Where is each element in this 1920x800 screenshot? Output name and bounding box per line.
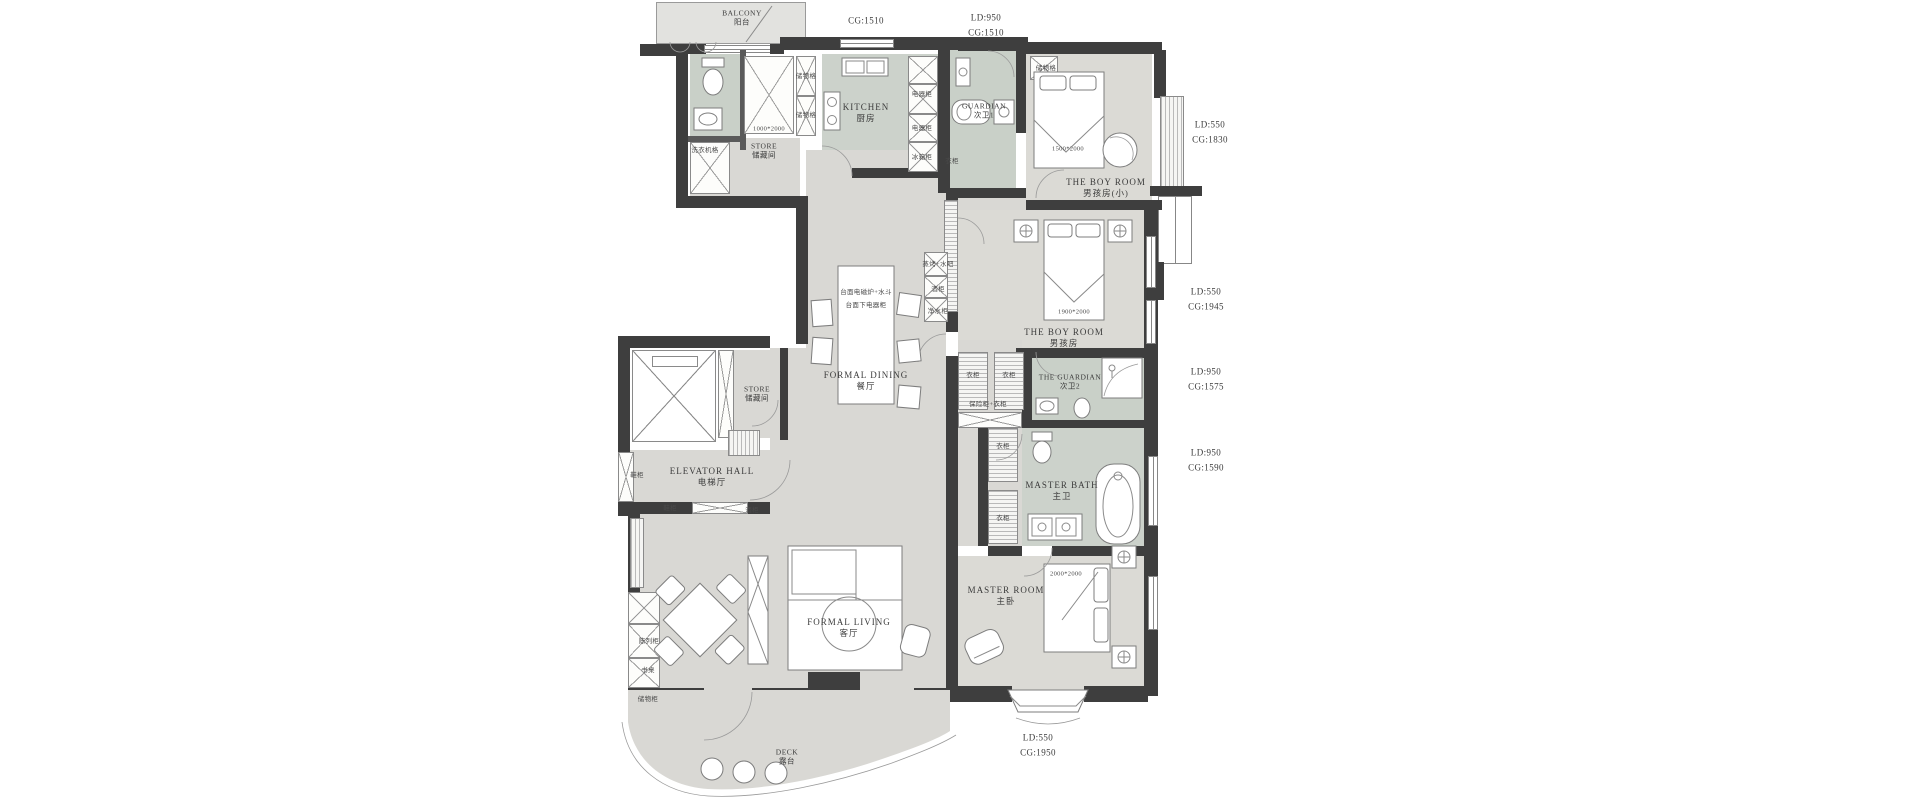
cab-xiegui: 鞋柜 [630, 469, 644, 479]
wall [618, 336, 770, 348]
wall [1026, 200, 1162, 210]
cab-chuwuge: 储物格 [796, 70, 816, 80]
cab-jiugui: 酒柜 [931, 283, 945, 293]
wall [978, 425, 988, 546]
size-closet: 1000*2000 [753, 126, 785, 133]
deck-door-arc [704, 692, 752, 740]
label-balcony: BALCONY阳台 [722, 9, 762, 28]
cab-dianqigui: 电器柜 [912, 88, 932, 98]
label-deck: DECK露台 [776, 748, 798, 767]
note-island-1: 台面电磁炉+水斗 [840, 286, 892, 296]
cab-zhengkao: 蒸烤+水吧 [922, 258, 953, 268]
wall [946, 356, 958, 690]
cab-bingxiang: 冰箱柜 [912, 151, 932, 161]
wall [1022, 420, 1152, 428]
floor-bath1 [690, 54, 742, 138]
closet-box [744, 56, 794, 134]
planter [718, 706, 746, 713]
cab-yigui: 衣柜 [1002, 369, 1016, 379]
label-master-bath: MASTER BATH主卫 [1025, 480, 1098, 502]
wardrobe [988, 428, 1018, 482]
master-bay-window [1008, 690, 1088, 712]
window [1148, 576, 1158, 630]
floor-plan: BALCONY阳台 KITCHEN厨房 STORE储藏间 GUARDIAN次卫1… [0, 0, 1920, 800]
wall [946, 686, 1012, 702]
wall [808, 672, 860, 716]
cab-chenlie: 陈列柜 [639, 635, 659, 645]
label-living: FORMAL LIVING客厅 [807, 617, 890, 639]
dim-right-4: LD:950CG:1590 [1188, 446, 1224, 477]
floor-dining-corridor [806, 150, 946, 690]
window-kitchen [840, 39, 894, 48]
cab-washer: 洗衣机格 [691, 144, 718, 154]
size-bed-master: 2000*2000 [1050, 571, 1082, 578]
dim-right-2: LD:550CG:1945 [1188, 285, 1224, 316]
label-elevator: ELEVATOR HALL电梯厅 [670, 466, 754, 488]
wall [1084, 686, 1148, 702]
wall [1150, 186, 1202, 196]
window [1146, 236, 1156, 288]
wall [796, 196, 808, 344]
wall [676, 196, 808, 208]
wall [780, 348, 788, 440]
dim-top-left: CG:1510 [848, 13, 884, 28]
label-dining: FORMAL DINING餐厅 [824, 370, 908, 392]
dim-right-1: LD:550CG:1830 [1192, 118, 1228, 149]
size-bed-boy: 1900*2000 [1058, 309, 1090, 316]
living-cabinet-col [628, 592, 660, 624]
wall [676, 44, 688, 208]
cab-chuwuge: 储物格 [796, 109, 816, 119]
wall [988, 546, 1022, 556]
dim-bottom: LD:550CG:1950 [1020, 731, 1056, 762]
elevator-shaft-detail [652, 356, 698, 367]
label-kitchen: KITCHEN厨房 [843, 102, 890, 124]
size-bed-small: 1500*2000 [1052, 146, 1084, 153]
label-boy: THE BOY ROOM男孩房 [1024, 327, 1104, 349]
cab-shuzhuo: 书桌 [641, 664, 655, 674]
window [1148, 456, 1158, 526]
wall [1016, 49, 1026, 133]
label-store-top: STORE储藏间 [751, 142, 777, 161]
wall [752, 688, 810, 702]
label-guardian2: THE GUARDIAN次卫2 [1039, 373, 1101, 392]
deck-planter [701, 758, 723, 780]
cab-dianqigui: 电器柜 [912, 122, 932, 132]
planter [752, 706, 780, 713]
dim-right-3: LD:950CG:1575 [1188, 365, 1224, 396]
radiator-living [630, 518, 644, 588]
wall [946, 188, 1026, 198]
cab-yigui: 衣柜 [996, 512, 1010, 522]
cab-chuwugui: 储物柜 [638, 693, 658, 703]
bay-window-right [1158, 196, 1192, 264]
wall [1154, 50, 1166, 98]
label-store-mid: STORE储藏间 [744, 385, 770, 404]
deck-planter [733, 761, 755, 783]
window [704, 45, 772, 53]
store-mid-cabinet [718, 350, 734, 438]
safe-cabinet [958, 412, 1022, 428]
cab-yigui: 衣柜 [996, 440, 1010, 450]
cab-jiugui: 酒柜 [745, 504, 759, 514]
label-boy-small: THE BOY ROOM男孩房(小) [1066, 177, 1146, 199]
cab-yigui: 衣柜 [966, 369, 980, 379]
kitchen-cabinet [908, 56, 938, 84]
note-island-2: 台面下电器柜 [846, 299, 887, 309]
dim-top-right: LD:950CG:1510 [968, 11, 1004, 42]
radiator [1160, 96, 1184, 188]
cab-baoxian: 保险柜+衣柜 [969, 398, 1007, 408]
cabinet-strip [692, 502, 748, 514]
window-living [856, 694, 918, 710]
cab-yigui: 衣柜 [945, 155, 959, 165]
floor-living-left [640, 512, 810, 690]
window [1146, 300, 1156, 344]
wall [1026, 42, 1162, 54]
wall [1016, 348, 1146, 358]
wall [1052, 546, 1152, 556]
label-guardian1: GUARDIAN次卫1 [962, 102, 1006, 121]
steps [728, 430, 760, 456]
cab-chuwuge: 储物格 [1036, 62, 1056, 72]
label-master: MASTER ROOM主卧 [968, 585, 1045, 607]
cab-xiegui: 鞋柜 [663, 502, 677, 512]
cab-jingshui: 净水柜 [928, 305, 948, 315]
wall [914, 688, 950, 702]
